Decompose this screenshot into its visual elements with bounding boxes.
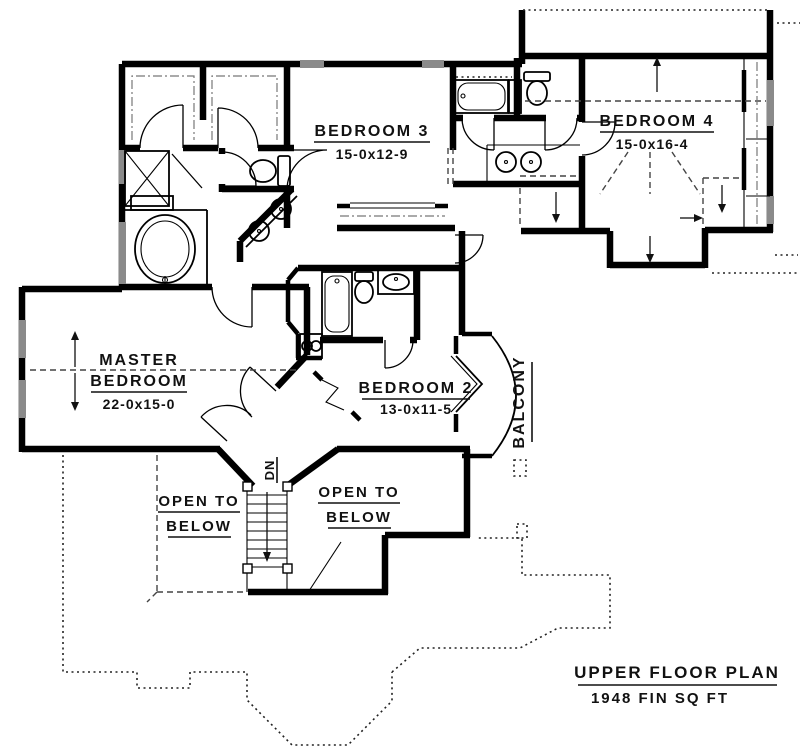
bath2-tub [322,272,352,336]
bedroom4-label: BEDROOM 4 [600,113,715,130]
bath2-toilet [355,272,373,303]
open-below-left-line2: BELOW [166,518,232,535]
floor-plan-canvas: BEDROOM 3 15-0x12-9 BEDROOM 4 15-0x16-4 … [0,0,800,754]
bedroom4-dims: 15-0x16-4 [616,136,689,152]
hall-bath-tub [455,80,521,113]
bedroom2-dims: 13-0x11-5 [380,401,452,417]
hall-bath-sinks [487,145,580,184]
bath2-sink [378,270,414,294]
open-below-right-line2: BELOW [326,509,392,526]
hall-bath-toilet [524,72,550,105]
bedroom3-dims: 15-0x12-9 [336,146,409,162]
master-label-line2: BEDROOM [90,373,188,390]
master-label-line1: MASTER [99,352,179,369]
master-tub [125,196,207,287]
staircase [243,482,292,592]
bedroom3-label: BEDROOM 3 [315,123,430,140]
annotation-labels: OPEN TO BELOW OPEN TO BELOW DN [158,457,400,537]
exterior-and-interior-walls [22,10,773,594]
open-below-right-line1: OPEN TO [318,484,399,501]
bedroom2-label: BEDROOM 2 [359,380,474,397]
master-dims: 22-0x15-0 [103,396,176,412]
plan-title: UPPER FLOOR PLAN [574,663,780,682]
plan-area: 1948 FIN SQ FT [591,690,729,707]
open-below-left-line1: OPEN TO [158,493,239,510]
floor-plan-page: BEDROOM 3 15-0x12-9 BEDROOM 4 15-0x16-4 … [0,0,800,754]
balcony-label: BALCONY [511,355,528,448]
title-block: UPPER FLOOR PLAN 1948 FIN SQ FT [574,663,780,707]
stair-dn-label: DN [262,460,277,481]
